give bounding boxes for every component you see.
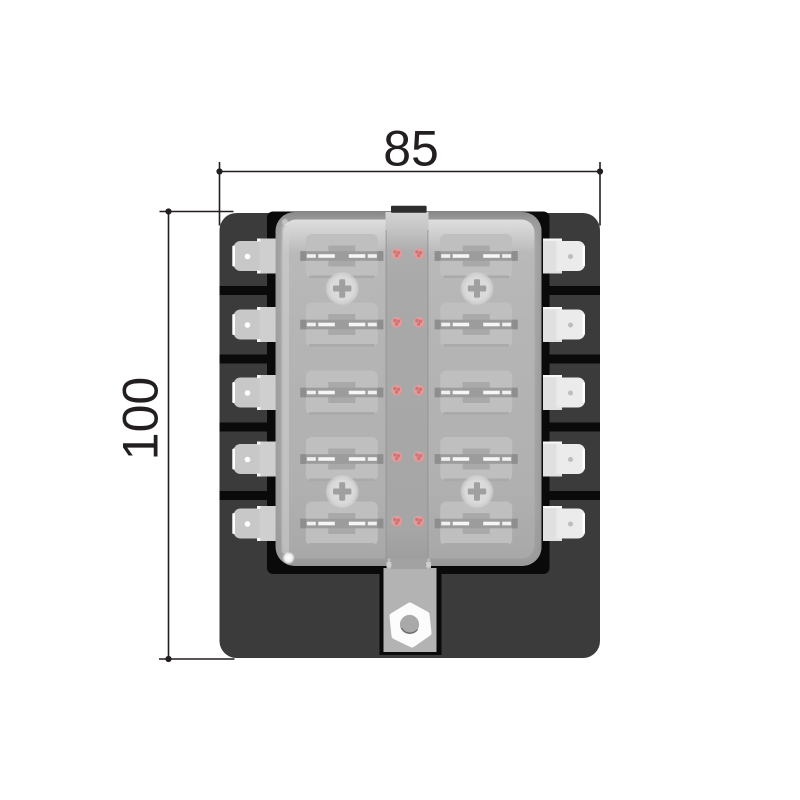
svg-text:100: 100 <box>113 377 169 460</box>
svg-text:85: 85 <box>383 121 439 177</box>
